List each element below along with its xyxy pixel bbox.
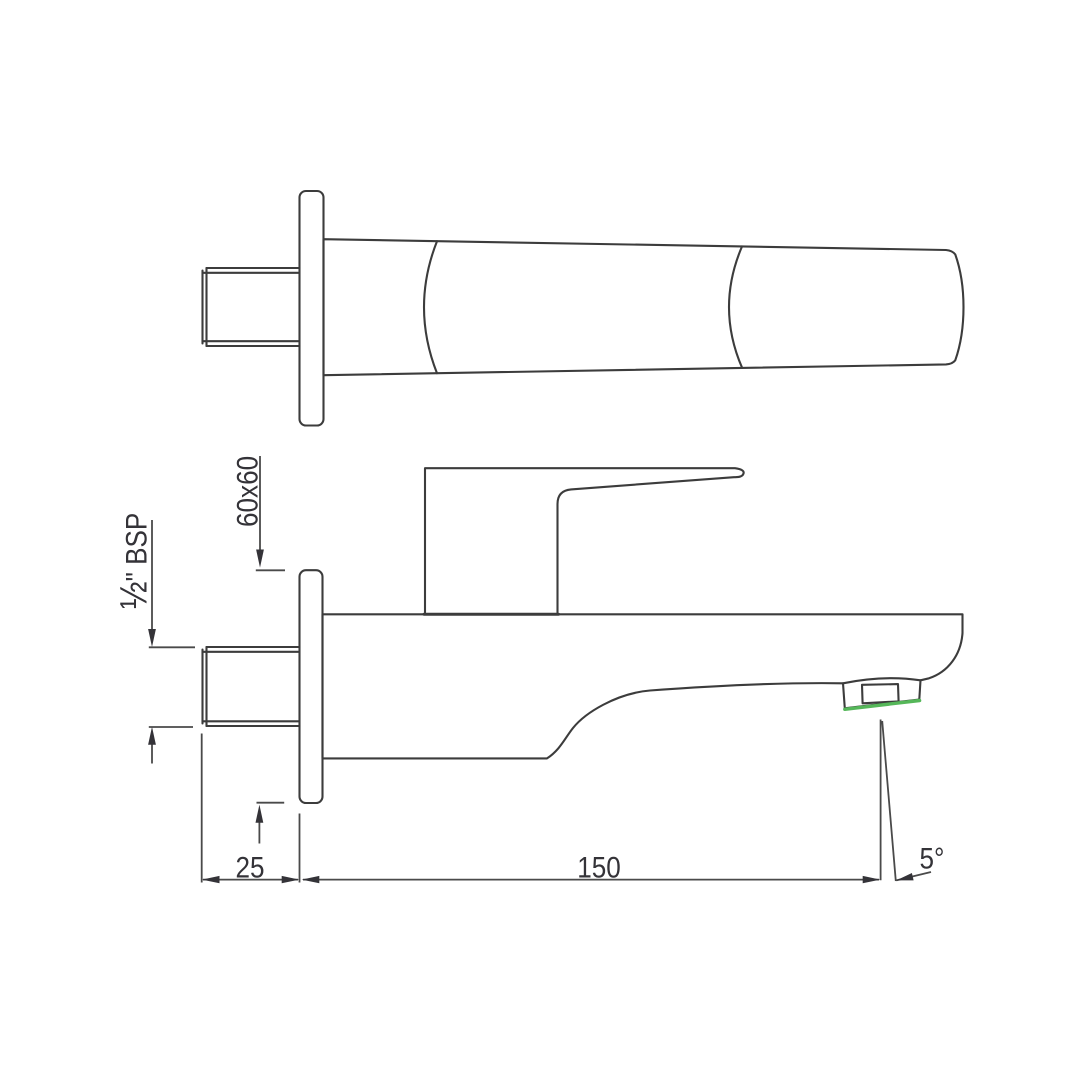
svg-text:½" BSP: ½" BSP <box>112 513 155 609</box>
svg-text:25: 25 <box>235 851 264 884</box>
svg-text:5°: 5° <box>920 842 945 875</box>
svg-text:150: 150 <box>577 851 621 884</box>
svg-text:60x60: 60x60 <box>231 456 264 527</box>
